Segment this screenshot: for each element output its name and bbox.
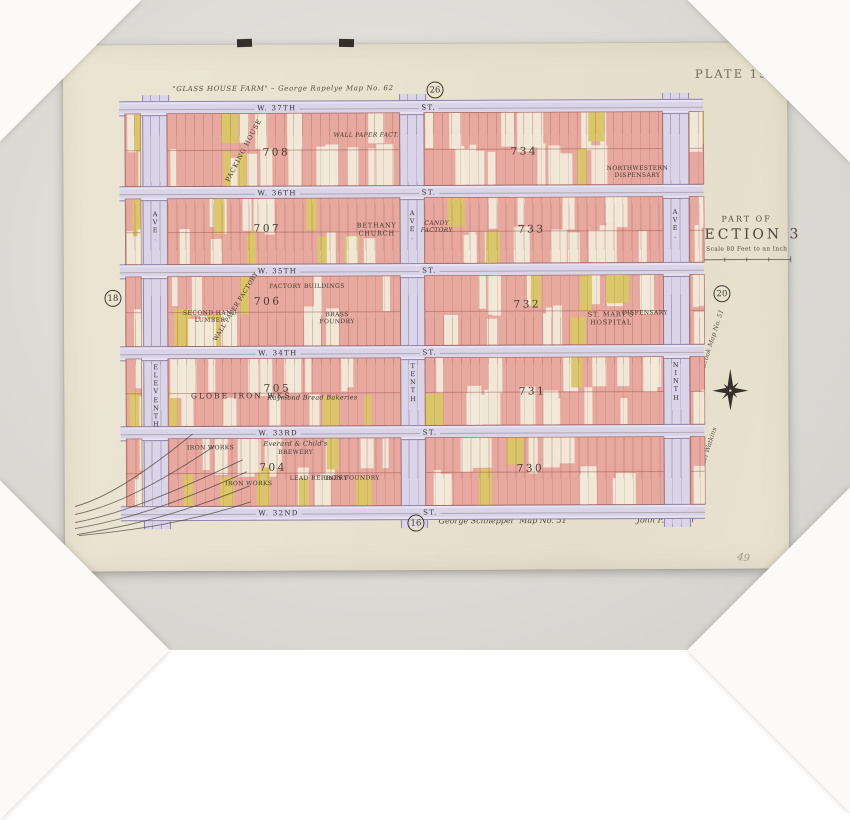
street-name-label: W. 36TH xyxy=(255,189,300,197)
lot-patch xyxy=(425,113,433,148)
edge-sliver-left xyxy=(126,277,141,346)
lot-patch xyxy=(518,198,524,225)
edge-sliver-right xyxy=(690,275,704,344)
lot-patch xyxy=(585,466,597,504)
street-suffix-label: ST. xyxy=(419,266,440,274)
lot-patch xyxy=(469,145,477,185)
lot-patch xyxy=(479,469,492,505)
lot-patch xyxy=(347,358,354,387)
lot-patch xyxy=(347,147,358,185)
farm-note-top: "GLASS HOUSE FARM" – George Rapelye Map … xyxy=(133,84,433,93)
lot-patch xyxy=(341,358,347,391)
street-suffix-label: ST. xyxy=(420,508,441,516)
section-note: PART OF SECTION 3 Scale 80 Feet to an In… xyxy=(692,214,802,263)
lot-patch xyxy=(368,149,376,186)
street-name-label: W. 35TH xyxy=(255,267,300,275)
lot-patch xyxy=(327,232,336,263)
lot-patch xyxy=(580,275,592,311)
map-label: DISPENSARY xyxy=(622,309,668,316)
block-number: 730 xyxy=(517,462,545,474)
lot-patch xyxy=(550,399,561,425)
city-block-730: 730 xyxy=(426,437,664,505)
block-number: 706 xyxy=(254,295,282,307)
mount-tab-left xyxy=(237,39,252,48)
lot-patch xyxy=(617,357,629,386)
avenue-suffix-label: A V E . xyxy=(673,208,678,241)
lot-patch xyxy=(298,478,308,505)
edge-sliver-right xyxy=(690,197,704,262)
edge-sliver-right xyxy=(690,357,704,424)
map-label: BETHANY CHURCH xyxy=(357,222,397,238)
city-block-731: 731 xyxy=(425,357,663,425)
lot-patch xyxy=(568,232,580,262)
map-paper: PLATE 19. "GLASS HOUSE FARM" – George Ra… xyxy=(63,42,789,571)
edge-sliver-left xyxy=(126,359,141,426)
street-suffix-label: ST. xyxy=(419,348,440,356)
lot-patch xyxy=(694,312,704,344)
lot-patch xyxy=(617,275,629,302)
lot-patch xyxy=(138,151,140,187)
street-name-label: W. 33RD xyxy=(256,429,301,437)
lot-patch xyxy=(484,390,501,425)
lot-patch xyxy=(249,230,255,264)
street-name-label: W. 32ND xyxy=(255,509,301,517)
lot-patch xyxy=(134,114,140,151)
lot-patch xyxy=(479,276,486,309)
map-label: Everard & Child's xyxy=(264,441,328,449)
lot-patch xyxy=(214,199,225,234)
lot-patch xyxy=(538,144,546,185)
lot-patch xyxy=(694,225,701,262)
lot-patch xyxy=(364,238,376,263)
lot-patch xyxy=(487,318,498,344)
lot-patch xyxy=(563,197,575,229)
avenue-suffix-label: A V E . xyxy=(153,210,158,243)
lot-patch xyxy=(501,113,514,147)
photo-background: PLATE 19. "GLASS HOUSE FARM" – George Ra… xyxy=(0,0,850,650)
lot-patch xyxy=(640,275,654,314)
lot-patch xyxy=(436,474,450,505)
lot-patch xyxy=(578,148,587,184)
section-scale-text: Scale 80 Feet to an Inch xyxy=(692,245,802,252)
lot-patch xyxy=(327,438,339,469)
lot-patch xyxy=(698,275,704,306)
lot-patch xyxy=(171,359,186,398)
lot-patch xyxy=(506,438,523,465)
block-number: 731 xyxy=(519,386,547,398)
lot-patch xyxy=(347,236,358,263)
lot-patch xyxy=(530,112,543,147)
lot-patch xyxy=(647,357,661,387)
lot-patch xyxy=(444,315,458,345)
lot-patch xyxy=(699,197,704,224)
lot-patch xyxy=(476,438,491,468)
lot-patch xyxy=(690,112,702,152)
lot-patch xyxy=(477,150,485,185)
map-label: WALL PAPER FACT. xyxy=(334,132,399,139)
lot-patch xyxy=(138,229,141,264)
map-label: IRON FOUNDRY xyxy=(324,475,380,482)
lot-patch xyxy=(486,231,500,263)
lot-patch xyxy=(170,149,177,186)
map-label: NORTHWESTERN DISPENSARY xyxy=(607,165,668,180)
lot-patch xyxy=(426,394,444,425)
map-label: BREWERY xyxy=(278,449,313,456)
plate-ref-circle: 20 xyxy=(713,285,730,302)
lot-patch xyxy=(701,389,704,424)
lot-patch xyxy=(489,358,502,394)
lot-patch xyxy=(307,198,317,230)
avenue-name-label: E L E V E N T H xyxy=(153,363,159,428)
lot-patch xyxy=(465,236,476,263)
lot-patch xyxy=(493,276,501,316)
lot-patch xyxy=(549,146,561,185)
edge-sliver-right xyxy=(691,437,705,504)
map-label: FACTORY BUILDINGS xyxy=(269,283,345,291)
lot-patch xyxy=(208,359,215,392)
lot-patch xyxy=(588,230,600,262)
lot-patch xyxy=(638,231,646,262)
lot-patch xyxy=(365,395,372,425)
map-label: Raymond Bread Bakeries xyxy=(267,394,357,402)
lot-patch xyxy=(377,144,393,185)
avenue-name-label: T E N T H xyxy=(410,362,416,403)
lot-patch xyxy=(135,359,141,388)
lot-patch xyxy=(455,146,464,185)
lot-patch xyxy=(551,229,567,263)
edge-sliver-right xyxy=(689,112,703,184)
map-label: IRON WORKS xyxy=(187,444,234,451)
lot-patch xyxy=(382,438,389,468)
lot-patch xyxy=(570,317,587,344)
lot-patch xyxy=(287,114,303,149)
lot-patch xyxy=(325,144,338,185)
block-number: 733 xyxy=(518,223,546,235)
plate-ref-circle: 18 xyxy=(104,290,121,307)
lot-patch xyxy=(620,398,627,425)
lot-patch xyxy=(469,394,485,424)
lot-patch xyxy=(248,359,260,394)
lot-patch xyxy=(606,197,623,227)
edge-sliver-left xyxy=(126,199,141,264)
lot-patch xyxy=(210,239,221,264)
lot-patch xyxy=(592,357,606,386)
map-label: SECOND HAND LUMBER xyxy=(183,310,237,325)
lot-patch xyxy=(600,225,618,262)
street-suffix-label: ST. xyxy=(419,188,440,196)
city-block-733: 733 xyxy=(425,197,663,263)
plate-ref-circle: 26 xyxy=(427,81,444,98)
section-part-of: PART OF xyxy=(692,214,802,223)
lot-patch xyxy=(585,387,593,424)
lot-patch xyxy=(129,392,139,426)
block-number: 734 xyxy=(510,145,538,157)
lot-patch xyxy=(592,146,607,185)
pencil-mark: 49 xyxy=(736,552,750,565)
block-number: 704 xyxy=(259,461,287,473)
lot-patch xyxy=(571,357,581,387)
lot-patch xyxy=(243,199,252,231)
lot-patch xyxy=(489,198,498,229)
lot-patch xyxy=(553,305,562,344)
lot-patch xyxy=(543,314,551,345)
edge-sliver-left xyxy=(125,114,140,186)
lot-patch xyxy=(360,438,373,468)
street-suffix-label: ST. xyxy=(420,428,441,436)
lot-patch xyxy=(436,358,443,393)
lot-patch xyxy=(180,229,190,264)
lot-patch xyxy=(488,152,496,185)
avenue-suffix-label: A V E . xyxy=(410,209,415,242)
plate-ref-circle: 16 xyxy=(407,515,424,532)
street-name-label: W. 34TH xyxy=(255,349,300,357)
lot-patch xyxy=(449,113,462,149)
lot-patch xyxy=(172,277,179,306)
map-label: IRON WORKS xyxy=(225,480,272,487)
compass-rose-icon xyxy=(710,369,750,413)
street-suffix-label: ST. xyxy=(418,103,439,111)
block-number: 732 xyxy=(514,298,542,310)
lot-patch xyxy=(588,112,604,141)
lot-patch xyxy=(248,154,258,186)
lot-patch xyxy=(383,276,390,311)
lot-patch xyxy=(224,398,237,426)
street-name-label: W. 37TH xyxy=(254,104,299,112)
mount-tab-right xyxy=(339,39,354,47)
block-number: 707 xyxy=(254,223,282,235)
map-label: CANDY FACTORY xyxy=(421,220,453,235)
lot-patch xyxy=(557,437,575,464)
lot-patch xyxy=(615,474,630,505)
avenue-name-label: N I N T H xyxy=(673,361,679,402)
scale-bar xyxy=(701,254,793,263)
lot-patch xyxy=(693,466,705,504)
lot-patch xyxy=(221,114,238,143)
block-number: 708 xyxy=(263,146,291,158)
lot-patch xyxy=(305,358,311,392)
city-block-708: 708 xyxy=(167,113,399,186)
lot-patch xyxy=(702,112,703,144)
section-name: SECTION 3 xyxy=(692,226,802,242)
map-label: BRASS FOUNDRY xyxy=(319,311,354,326)
lot-patch xyxy=(140,312,142,346)
lot-patch xyxy=(693,392,701,424)
